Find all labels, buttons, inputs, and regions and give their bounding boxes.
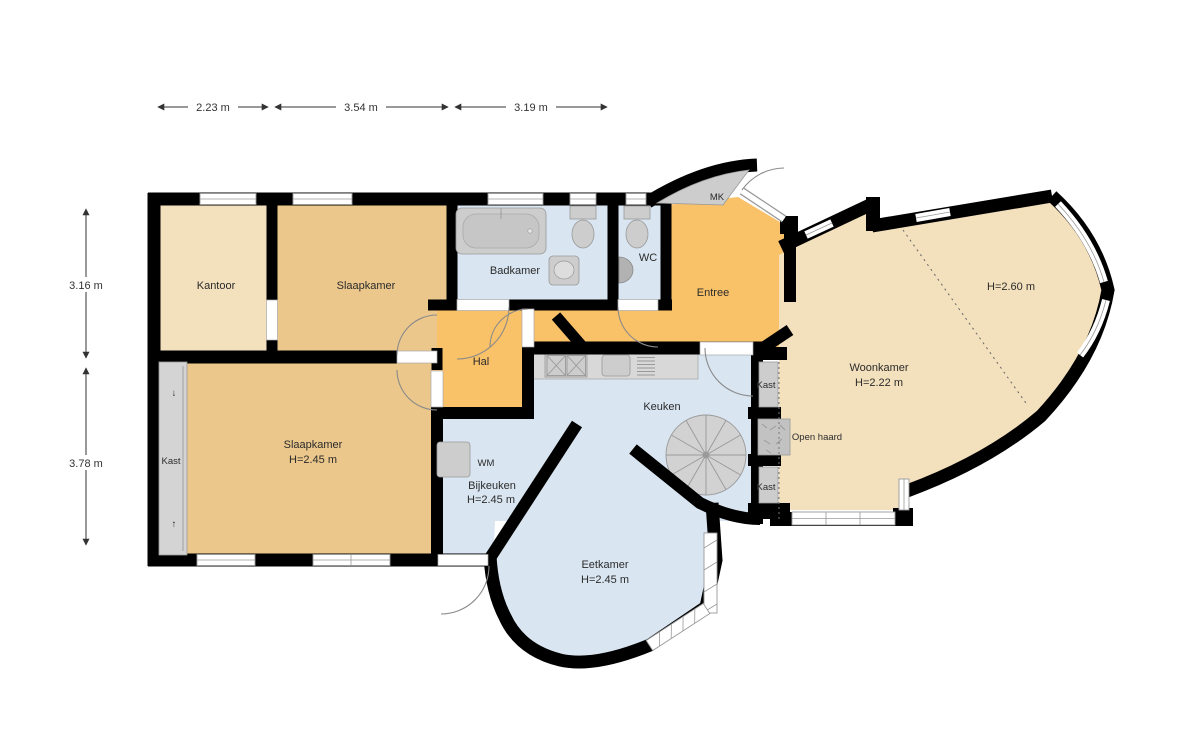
room-slaapkamer-boven [272, 199, 452, 357]
window [626, 194, 646, 205]
window [704, 533, 717, 613]
wall-kast-stub-3 [748, 454, 781, 466]
window [313, 555, 390, 566]
label-woonkamer: Woonkamer [849, 362, 908, 374]
dimension-label-left-1: 3.16 m [69, 280, 103, 292]
dimension-label-left-2: 3.78 m [69, 458, 103, 470]
label-kast-left: Kast [161, 456, 180, 467]
bathtub-icon [456, 208, 546, 254]
wall-corner-block [893, 508, 913, 526]
label-slaapkamer-onder: Slaapkamer [284, 439, 343, 451]
wall-kast-stub-1 [751, 347, 787, 360]
kast-slide-arrow-down: ↓ [172, 388, 177, 399]
label-hal: Hal [473, 356, 490, 368]
label-woonkamer-height: H=2.22 m [855, 377, 903, 389]
label-eetkamer-height: H=2.45 m [581, 574, 629, 586]
door-opening [438, 555, 488, 566]
door-arc-bijkeuken [441, 566, 489, 614]
toilet-icon [624, 206, 650, 248]
window [899, 479, 909, 510]
room-woonkamer [779, 197, 1107, 510]
window [200, 194, 256, 205]
door-opening [267, 300, 278, 340]
dimension-label-top-3: 3.19 m [514, 102, 548, 114]
dimension-label-top-2: 3.54 m [344, 102, 378, 114]
label-kast-right-bottom: Kast [756, 482, 775, 493]
bathroom-sink-icon [549, 256, 579, 285]
room-entree [666, 197, 790, 348]
label-bijkeuken-height: H=2.45 m [467, 494, 515, 506]
label-slaapkamer-onder-height: H=2.45 m [289, 454, 337, 466]
label-wm: WM [478, 458, 495, 469]
dimension-label-top-1: 2.23 m [196, 102, 230, 114]
door-opening [457, 300, 509, 311]
label-mk: MK [710, 192, 725, 203]
stove-body [545, 354, 587, 377]
room-kantoor [154, 199, 272, 357]
label-eetkamer: Eetkamer [581, 559, 628, 571]
label-woonkamer-height2: H=2.60 m [987, 281, 1035, 293]
wall-kast-stub-2 [748, 407, 781, 419]
window [570, 194, 596, 205]
window [792, 512, 895, 525]
window [197, 555, 255, 566]
label-bijkeuken: Bijkeuken [468, 480, 516, 492]
window [488, 194, 543, 205]
window [293, 194, 352, 205]
door-opening [397, 351, 437, 363]
kast-slide-arrow-up: ↑ [172, 519, 177, 530]
label-kantoor: Kantoor [197, 280, 236, 292]
sink-basin [602, 355, 630, 376]
label-wc: WC [639, 252, 657, 264]
stove-icon [545, 354, 587, 377]
floorplan-svg: 2.23 m 3.54 m 3.19 m 3.16 m 3.78 m [0, 0, 1200, 738]
label-badkamer: Badkamer [490, 265, 540, 277]
door-opening [522, 309, 534, 347]
door-opening [431, 371, 443, 407]
label-entree: Entree [697, 287, 729, 299]
label-slaapkamer-boven: Slaapkamer [337, 280, 396, 292]
label-open-haard: Open haard [792, 432, 842, 443]
label-keuken: Keuken [643, 401, 680, 413]
stair-center [703, 452, 710, 459]
door-opening [618, 300, 658, 311]
fireplace-icon [758, 419, 790, 455]
label-kast-right-top: Kast [756, 380, 775, 391]
floorplan-canvas: 2.23 m 3.54 m 3.19 m 3.16 m 3.78 m [0, 0, 1200, 738]
door-opening [700, 342, 753, 355]
washing-machine-icon [437, 442, 470, 477]
toilet-icon [570, 206, 596, 248]
